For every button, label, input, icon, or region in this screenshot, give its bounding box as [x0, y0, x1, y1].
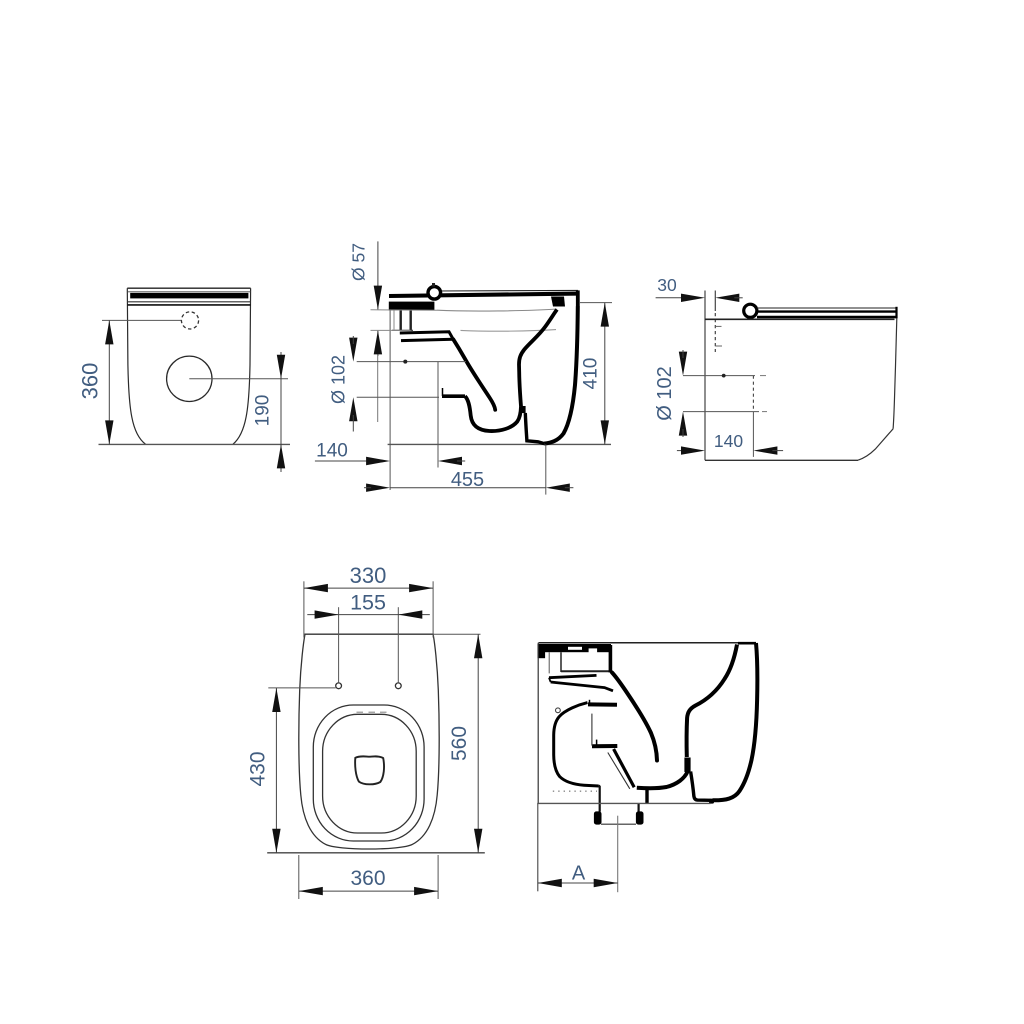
svg-text:30: 30: [657, 275, 677, 295]
svg-text:Ø 102: Ø 102: [329, 355, 349, 404]
svg-text:560: 560: [448, 726, 471, 761]
svg-text:155: 155: [350, 591, 386, 615]
svg-text:140: 140: [316, 441, 348, 462]
svg-text:Ø 57: Ø 57: [349, 243, 369, 281]
svg-text:455: 455: [451, 469, 484, 491]
svg-text:360: 360: [350, 867, 385, 890]
svg-text:430: 430: [247, 751, 270, 786]
svg-text:190: 190: [253, 395, 274, 427]
svg-text:360: 360: [78, 363, 103, 400]
svg-text:Ø 102: Ø 102: [654, 366, 676, 420]
svg-text:A: A: [572, 863, 586, 885]
svg-text:140: 140: [714, 431, 743, 451]
svg-text:330: 330: [350, 563, 387, 588]
svg-text:410: 410: [581, 358, 602, 390]
